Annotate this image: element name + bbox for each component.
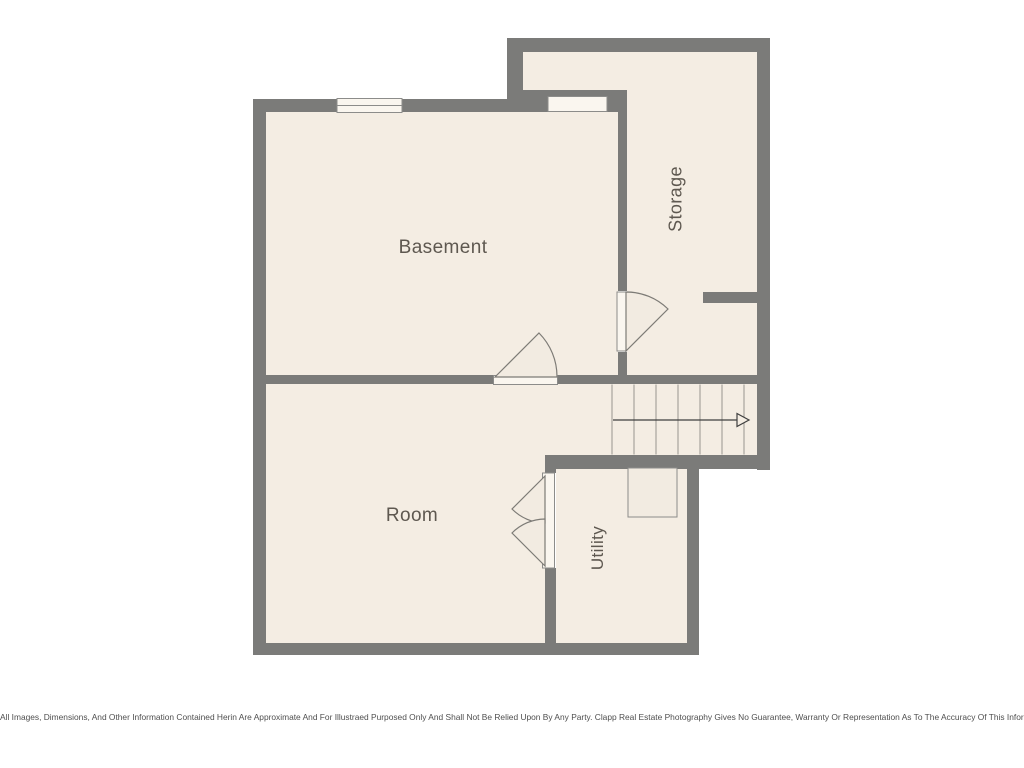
wall-exterior-bottom [253,643,699,655]
wall-utility-west-lower [545,568,556,655]
wall-storage-top [507,38,770,52]
wall-mid-left [266,375,493,384]
floorplan-page: Basement Storage Room Utility All Images… [0,0,1024,768]
wall-utility-east [687,455,699,655]
wall-storage-west [507,38,523,99]
wall-mid-right [558,375,757,384]
wall-storage-stub [703,292,757,303]
wall-below-stairs [545,455,770,469]
wall-exterior-right [757,38,770,470]
wall-utility-west-upper [545,455,556,473]
room-label-basement: Basement [399,237,488,259]
window-basement-top [337,99,402,113]
wall-divider-upper [618,90,627,291]
room-label-utility: Utility [588,526,608,570]
room-label-storage: Storage [666,166,687,232]
room-label-room: Room [386,505,438,527]
wall-exterior-left [253,99,266,655]
door-leaf [617,292,627,351]
floorplan-drawing [0,0,1024,768]
disclaimer-text: All Images, Dimensions, And Other Inform… [0,712,1024,722]
window-storage-top [548,97,607,112]
floor-areas [266,52,757,643]
utility-fixture [628,468,677,517]
